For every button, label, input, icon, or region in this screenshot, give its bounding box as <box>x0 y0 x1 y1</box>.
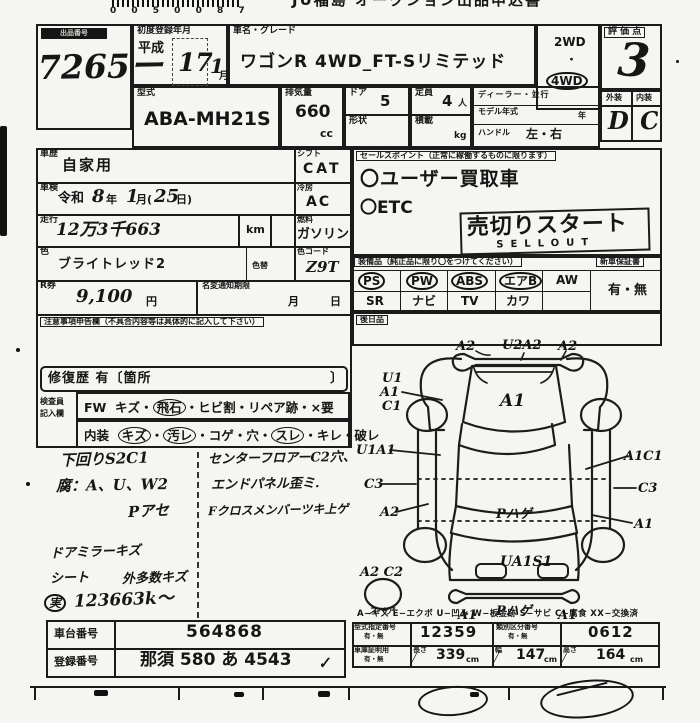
door-label: ドア <box>349 89 367 98</box>
history-label: 車歴 <box>40 150 58 159</box>
equipment-label: 装備品（純正品に限り〇をつけてください） <box>354 257 522 267</box>
equip-abs: ABS <box>451 272 488 290</box>
type-number-label: 型式指定番号 <box>354 624 396 631</box>
score-value: 3 <box>616 35 651 85</box>
mark-tailgate: UA1S1 <box>500 554 552 570</box>
first-registration-label: 初度登録年月 <box>137 27 191 36</box>
mark-stack-u1: U1 <box>382 371 402 386</box>
displacement-cell: 排気量 660 cc <box>280 86 344 148</box>
separator-dot: ・ <box>140 400 153 415</box>
equip-col-line <box>542 270 543 312</box>
height-value: 164 <box>596 648 625 663</box>
barcode-digits: 0 0 5 0 0 8 7 <box>110 7 251 16</box>
mark-front-left: A2 <box>454 339 475 354</box>
warranty-label: 新車保証書 <box>596 257 644 267</box>
plate-checkmark: ✓ <box>317 655 332 672</box>
mark-front-right: A2 <box>556 339 577 354</box>
ac-value: AC <box>306 195 331 210</box>
notice-label: 注意事項申告欄（不具合内容等は具体的に記入して下さい） <box>40 317 264 327</box>
shape-label: 形状 <box>349 117 367 126</box>
exterior-grade-value: D <box>608 108 629 133</box>
later-items-label: 後日品 <box>356 315 388 325</box>
r-ticket-label: R券 <box>40 282 56 291</box>
dealer-parallel-label: ディーラー・並行 <box>478 91 549 99</box>
garage-cert-label: 車庫証明用 <box>354 647 389 654</box>
mark-stack-a1: A1 <box>378 385 399 400</box>
sales-point-label: セールスポイント（正常に稼働するものに限ります） <box>356 151 556 161</box>
length-unit: cm <box>466 656 479 664</box>
note-end-panel: エンドパネル歪ミ. <box>211 477 320 493</box>
inspection-label: 車検 <box>40 184 58 193</box>
equip-leather: カワ <box>506 295 530 308</box>
repair-history-text: 修復歴 有〔箇所 <box>48 372 152 386</box>
model-year-label: モデル年式 <box>478 108 518 116</box>
repair-history-bracket: 〕 <box>330 372 343 386</box>
note-cross-member: Fクロスメンバーツキ上ゲ <box>208 503 348 518</box>
note-underbody: 下回りS2C1 <box>60 450 149 469</box>
note-seat: シート <box>50 571 89 586</box>
color-change-divider <box>246 246 247 280</box>
color-code-label: 色コード <box>297 248 329 256</box>
displacement-unit: cc <box>320 128 333 140</box>
note-center-floor: センターフロアーC2穴、 <box>208 451 356 467</box>
door-cell: ドア 5 形状 <box>344 86 410 148</box>
sales-point-panel: セールスポイント（正常に稼働するものに限ります） 〇ユーザー買取車 〇ETC 売… <box>352 148 662 256</box>
r-ticket-unit: 円 <box>146 296 157 308</box>
front-right-wheel <box>581 399 621 431</box>
interior-grade-label: 内装 <box>636 94 652 102</box>
left-fender <box>421 358 461 430</box>
shift-label: シフト <box>297 150 321 158</box>
drive-dot: ・ <box>566 54 577 66</box>
note-corrosion: 腐：A、U、W2 <box>56 477 168 495</box>
handle-label: ハンドル <box>478 129 510 137</box>
reg-year-value: 17 <box>178 50 213 76</box>
cutoff-smudge <box>94 690 108 696</box>
cutoff-smudge <box>318 691 330 697</box>
displacement-value: 660 <box>295 104 331 122</box>
km-box-left <box>238 214 240 246</box>
inspection-year: 8 <box>92 188 105 207</box>
sales-point-2: 〇ETC <box>360 200 413 218</box>
color-code-value: Z9T <box>306 260 339 276</box>
fw-label: FW <box>84 400 106 415</box>
model-code-label: 型式 <box>137 89 155 98</box>
separator-dot: ・ <box>304 428 317 443</box>
dealer-line2 <box>474 124 598 125</box>
r-ticket-value: 9,100 <box>76 288 132 307</box>
dealer-line1 <box>474 105 598 106</box>
left-col-divider <box>294 148 296 280</box>
note-actual-mark: 実 <box>44 594 66 612</box>
cutoff-tick <box>34 686 36 700</box>
equip-aw: AW <box>556 274 578 287</box>
scan-edge-mark <box>0 126 7 236</box>
notes-divider <box>197 452 199 618</box>
color-label: 色 <box>40 248 49 257</box>
equip-col-line <box>495 270 496 312</box>
class-number-label: 類別区分番号 <box>496 624 538 631</box>
height-check: ╱ <box>562 654 567 663</box>
color-change-label: 色替 <box>252 262 268 270</box>
width-value: 147 <box>516 648 545 663</box>
ac-label: 冷房 <box>297 184 313 192</box>
mark-left-rocker: C3 <box>364 477 383 492</box>
mark-left-side: U1A1 <box>356 443 396 458</box>
fuel-value: ガソリン <box>297 228 349 242</box>
cutoff-smudge <box>234 692 244 697</box>
mark-hood: A1 <box>498 391 525 411</box>
spare-tire <box>365 579 401 609</box>
interior-item-circled: スレ <box>271 427 304 444</box>
repair-history-box: 修復歴 有〔箇所 〕 <box>40 366 348 392</box>
inspector-label-1: 検査員 <box>40 398 64 406</box>
car-name-cell: 車名・グレード ワゴンR 4WD_FT-Sリミテッド <box>228 24 536 86</box>
separator-dot: ・ <box>236 400 249 415</box>
equip-col-line <box>400 270 401 312</box>
chassis-value: 564868 <box>186 624 263 642</box>
cutoff-row-scribble <box>538 675 635 723</box>
load-label: 積載 <box>415 117 433 126</box>
width-check: ╱ <box>494 654 499 663</box>
km-box-right <box>270 214 272 246</box>
model-year-unit: 年 <box>578 112 586 120</box>
rear-right-wheel <box>582 528 624 562</box>
inspection-month-unit: 月( <box>136 194 152 206</box>
height-unit: cm <box>630 656 643 664</box>
scan-speck <box>26 482 30 486</box>
sales-point-1: 〇ユーザー買取車 <box>360 170 520 190</box>
mark-front-center: U2A2 <box>502 338 542 353</box>
plate-value: 那須 580 あ 4543 <box>140 652 292 670</box>
drive-2wd: 2WD <box>554 36 586 49</box>
scan-speck <box>676 60 679 63</box>
mark-stack-c1: C1 <box>382 399 401 414</box>
capacity-unit: 人 <box>458 100 467 109</box>
load-unit: kg <box>454 132 466 141</box>
interior-row-text: 内装 キズ・汚レ・コゲ・穴・スレ・キレ・破レ <box>84 427 379 444</box>
mark-roof: Pハゲ <box>495 506 534 522</box>
fuel-label: 燃料 <box>297 216 313 224</box>
inspection-era: 令和 <box>58 192 84 206</box>
equip-airbag: エアB <box>499 272 542 290</box>
leader-lines <box>382 392 636 523</box>
cutoff-row-scribble <box>417 684 489 719</box>
equip-col-line <box>590 270 591 312</box>
first-registration-cell: 初度登録年月 平成 17 1 月 <box>132 24 228 86</box>
cutoff-tick <box>508 686 510 700</box>
inspector-interior-row: 内装 キズ・汚レ・コゲ・穴・スレ・キレ・破レ <box>76 420 350 448</box>
interior-item-circled: キズ <box>118 427 151 444</box>
type-number-value: 12359 <box>420 625 477 641</box>
equip-tv: TV <box>461 295 478 308</box>
equip-col-line <box>447 270 448 312</box>
cutoff-tick <box>178 686 180 700</box>
length-value: 339 <box>436 648 465 663</box>
interior-item: コゲ <box>209 428 234 443</box>
damage-diagram: A2 U2A2 A2 U1 A1 C1 A1 U1A1 C3 A2 A1C1 C… <box>352 338 662 622</box>
windshield-corners <box>474 368 554 383</box>
door-value: 5 <box>380 94 390 110</box>
separator-dot: ・ <box>196 428 209 443</box>
garage-cert-sub: 有・無 <box>364 656 384 663</box>
ticket-col-divider <box>196 280 198 314</box>
handle-value: 左・右 <box>526 128 562 141</box>
history-value: 自家用 <box>62 158 113 174</box>
auction-sheet-page: 0 0 5 0 0 8 7 JU福島 オークション出品申込書 出品番号 7265… <box>0 0 700 700</box>
rear-bumper <box>449 590 579 603</box>
separator-dot: ・ <box>234 428 247 443</box>
right-fender <box>567 358 607 430</box>
interior-item: 穴 <box>246 428 259 443</box>
interior-item: キレ <box>317 428 342 443</box>
rename-deadline-label: 名変通知期限 <box>202 282 250 290</box>
interior-label: 内装 <box>84 428 109 443</box>
mark-right-side: A1C1 <box>622 449 662 464</box>
rename-day: 日 <box>330 296 341 308</box>
grade-cell: 外装 内装 D C <box>600 90 662 142</box>
left-row-line5 <box>36 314 352 316</box>
cutoff-tick <box>348 686 350 700</box>
shift-value: CAT <box>303 162 342 177</box>
note-mirror-scratch: ドアミラーキズ <box>50 544 141 561</box>
model-code-cell: 型式 ABA-MH21S <box>132 86 280 148</box>
warranty-value: 有・無 <box>608 284 647 298</box>
width-unit: cm <box>544 656 557 664</box>
equip-navi: ナビ <box>412 295 436 308</box>
rename-month: 月 <box>288 296 299 308</box>
fw-item: キズ <box>115 400 140 415</box>
cutoff-smudge <box>470 692 479 697</box>
mark-right-rocker: C3 <box>638 481 657 496</box>
id-table-divider <box>114 620 116 678</box>
mileage-value: 12万3千663 <box>56 222 161 240</box>
era-heisei: 平成 <box>138 42 164 56</box>
note-many-scratches: 外多数キズ <box>122 571 187 587</box>
type-number-sub: 有・無 <box>364 633 384 640</box>
interior-grade-value: C <box>639 107 661 134</box>
length-check: ╱ <box>412 654 417 663</box>
mark-left-quarter: A2 <box>378 505 399 520</box>
inspector-fw-row: FW キズ・飛石・ヒビ割・リペア跡・×要 <box>76 392 350 420</box>
equip-header-line <box>352 270 662 271</box>
form-title: JU福島 オークション出品申込書 <box>292 0 542 9</box>
fw-item: ヒビ割 <box>198 400 236 415</box>
capacity-value: 4 <box>442 94 452 110</box>
displacement-label: 排気量 <box>285 89 312 98</box>
rear-left-wheel <box>404 528 446 562</box>
interior-item-circled: 汚レ <box>163 427 196 444</box>
car-name-label: 車名・グレード <box>233 27 296 36</box>
fw-item-circled: 飛石 <box>153 399 186 416</box>
score-cell: 評 価 点 3 <box>600 24 662 90</box>
mileage-unit: km <box>246 224 265 236</box>
capacity-cell: 定員 4 人 積載 kg <box>410 86 472 148</box>
separator-dot: ・ <box>259 428 272 443</box>
damage-legend: A−キズ E−エクボ U−凹み W−板金跡 S−サビ C−腐食 XX−交換済 <box>357 610 638 619</box>
cutoff-tick <box>662 686 664 700</box>
equip-sr: SR <box>366 295 384 308</box>
separator-dot: ・ <box>151 428 164 443</box>
class-number-value: 0612 <box>588 625 634 641</box>
inspection-day-unit: 日) <box>176 194 192 206</box>
exterior-grade-label: 外装 <box>606 94 622 102</box>
separator-dot: ・ <box>186 400 199 415</box>
sellout-en: SELLOUT <box>496 238 595 251</box>
note-paint-fade: Pアセ <box>128 503 170 521</box>
note-odometer: 123663k〜 <box>74 590 174 611</box>
sellout-jp: 売切りスタート <box>467 212 629 239</box>
inspector-label-2: 記入欄 <box>40 410 64 418</box>
grade-divider <box>631 92 633 140</box>
fw-item: ×要 <box>311 400 334 415</box>
sellout-stamp: 売切りスタート SELLOUT <box>459 208 650 256</box>
class-number-sub: 有・無 <box>508 633 528 640</box>
equip-row-line <box>352 291 590 292</box>
capacity-label: 定員 <box>415 89 433 98</box>
rear-glass-bottom <box>451 533 577 542</box>
mark-right-quarter: A1 <box>632 517 653 532</box>
chassis-label: 車台番号 <box>54 628 98 640</box>
model-code-value: ABA-MH21S <box>144 110 271 130</box>
plate-label: 登録番号 <box>54 655 98 668</box>
car-name-value: ワゴンR 4WD_FT-Sリミテッド <box>240 54 506 72</box>
fw-row-text: FW キズ・飛石・ヒビ割・リペア跡・×要 <box>84 399 334 416</box>
mark-spare: A2 C2 <box>358 565 403 580</box>
fw-item: リペア跡 <box>248 400 298 415</box>
scan-speck <box>16 348 20 352</box>
front-left-wheel <box>407 399 447 431</box>
color-value: ブライトレッド2 <box>58 258 166 272</box>
separator-dot: ・ <box>298 400 311 415</box>
cutoff-tick <box>262 686 264 700</box>
inspection-year-unit: 年 <box>106 194 117 206</box>
left-row-line4 <box>36 280 352 282</box>
lot-number-label: 出品番号 <box>41 28 107 39</box>
dealer-cell: ディーラー・並行 モデル年式 年 ハンドル 左・右 <box>472 86 600 148</box>
